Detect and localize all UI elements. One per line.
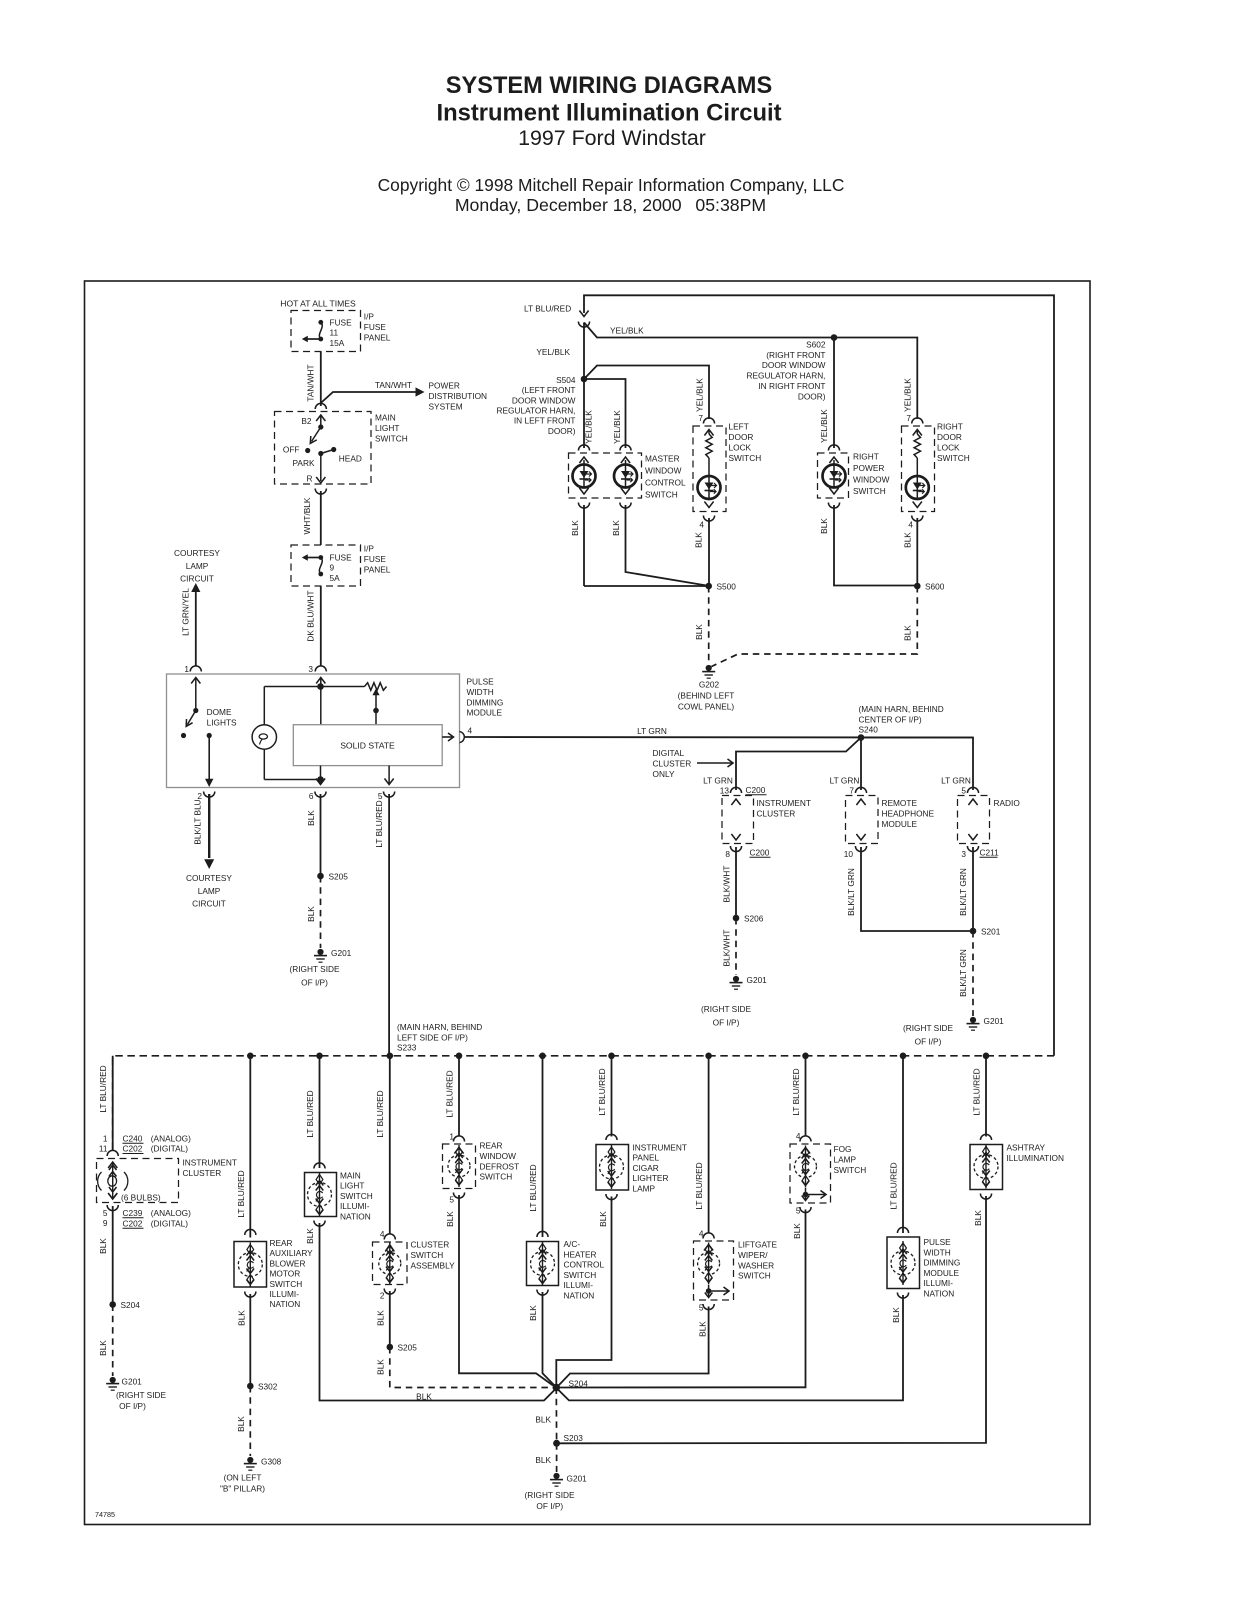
svg-text:DOME: DOME bbox=[207, 707, 232, 717]
svg-text:BLK: BLK bbox=[891, 1307, 901, 1323]
svg-text:5A: 5A bbox=[330, 573, 341, 583]
svg-text:S205: S205 bbox=[329, 872, 349, 882]
svg-text:INSTRUMENT: INSTRUMENT bbox=[757, 798, 811, 808]
svg-text:BLK: BLK bbox=[792, 1223, 802, 1239]
svg-text:MODULE: MODULE bbox=[467, 708, 503, 718]
svg-text:LT BLU/RED: LT BLU/RED bbox=[305, 1090, 315, 1137]
svg-text:BLK: BLK bbox=[416, 1392, 432, 1402]
svg-text:LAMP: LAMP bbox=[633, 1183, 656, 1193]
svg-text:LT GRN: LT GRN bbox=[637, 726, 667, 736]
svg-text:BLK: BLK bbox=[98, 1340, 108, 1356]
svg-text:SWITCH: SWITCH bbox=[645, 490, 678, 500]
svg-text:ASHTRAY: ASHTRAY bbox=[1007, 1143, 1046, 1153]
svg-text:WINDOW: WINDOW bbox=[853, 475, 890, 485]
svg-text:S204: S204 bbox=[569, 1379, 589, 1389]
svg-text:(DIGITAL): (DIGITAL) bbox=[151, 1218, 188, 1228]
svg-text:(RIGHT FRONT: (RIGHT FRONT bbox=[766, 350, 825, 360]
svg-text:DOOR: DOOR bbox=[937, 432, 962, 442]
svg-text:HEAD: HEAD bbox=[339, 454, 362, 464]
svg-text:G201: G201 bbox=[567, 1474, 588, 1484]
svg-text:BLK: BLK bbox=[375, 1310, 385, 1326]
svg-text:LAMP: LAMP bbox=[198, 886, 221, 896]
svg-text:RIGHT: RIGHT bbox=[937, 422, 963, 432]
svg-text:PULSE: PULSE bbox=[467, 677, 495, 687]
svg-text:ILLUMINATION: ILLUMINATION bbox=[1007, 1153, 1064, 1163]
svg-text:6: 6 bbox=[309, 791, 314, 801]
svg-text:CIRCUIT: CIRCUIT bbox=[180, 574, 214, 584]
svg-text:IN RIGHT FRONT: IN RIGHT FRONT bbox=[758, 381, 825, 391]
svg-text:LEFT SIDE OF I/P): LEFT SIDE OF I/P) bbox=[397, 1032, 468, 1042]
svg-text:PANEL: PANEL bbox=[364, 332, 391, 342]
svg-text:PANEL: PANEL bbox=[364, 564, 391, 574]
svg-text:Instrument Illumination Circui: Instrument Illumination Circuit bbox=[436, 100, 781, 127]
svg-text:C211: C211 bbox=[980, 848, 1000, 858]
svg-text:CIRCUIT: CIRCUIT bbox=[192, 899, 226, 909]
svg-text:SWITCH: SWITCH bbox=[853, 486, 886, 496]
svg-text:FUSE: FUSE bbox=[364, 554, 387, 564]
svg-text:WIDTH: WIDTH bbox=[467, 687, 494, 697]
svg-text:HEADPHONE: HEADPHONE bbox=[882, 809, 935, 819]
svg-text:CONTROL: CONTROL bbox=[645, 478, 686, 488]
svg-text:ONLY: ONLY bbox=[653, 769, 675, 779]
svg-text:COURTESY: COURTESY bbox=[174, 548, 220, 558]
svg-text:TAN/WHT: TAN/WHT bbox=[306, 364, 316, 401]
svg-text:(ANALOG): (ANALOG) bbox=[151, 1134, 191, 1144]
svg-text:(RIGHT SIDE: (RIGHT SIDE bbox=[116, 1390, 167, 1400]
svg-text:SWITCH: SWITCH bbox=[738, 1271, 771, 1281]
svg-text:BLK: BLK bbox=[598, 1211, 608, 1227]
svg-text:BLK: BLK bbox=[305, 1228, 315, 1244]
svg-text:MASTER: MASTER bbox=[645, 454, 680, 464]
svg-text:COURTESY: COURTESY bbox=[186, 873, 232, 883]
svg-text:DOOR WINDOW: DOOR WINDOW bbox=[762, 360, 826, 370]
svg-text:S204: S204 bbox=[121, 1300, 141, 1310]
svg-text:LOCK: LOCK bbox=[729, 443, 752, 453]
svg-text:NATION: NATION bbox=[564, 1291, 595, 1301]
svg-text:1997 Ford Windstar: 1997 Ford Windstar bbox=[518, 126, 706, 150]
svg-text:I/P: I/P bbox=[364, 544, 375, 554]
svg-text:OF I/P): OF I/P) bbox=[915, 1037, 942, 1047]
svg-text:CLUSTER: CLUSTER bbox=[183, 1168, 222, 1178]
svg-text:11: 11 bbox=[330, 328, 339, 338]
svg-text:OFF: OFF bbox=[283, 445, 300, 455]
svg-text:LIGHTS: LIGHTS bbox=[207, 717, 237, 727]
svg-text:CLUSTER: CLUSTER bbox=[411, 1240, 450, 1250]
svg-text:(ON LEFT: (ON LEFT bbox=[224, 1473, 262, 1483]
svg-text:YEL/BLK: YEL/BLK bbox=[819, 409, 829, 443]
svg-text:"B" PILLAR): "B" PILLAR) bbox=[220, 1484, 265, 1494]
svg-text:REMOTE: REMOTE bbox=[882, 798, 918, 808]
svg-text:LT BLU/RED: LT BLU/RED bbox=[524, 304, 571, 314]
svg-text:REGULATOR HARN,: REGULATOR HARN, bbox=[747, 371, 826, 381]
svg-text:MODULE: MODULE bbox=[924, 1268, 960, 1278]
svg-text:4: 4 bbox=[908, 520, 913, 530]
svg-text:5: 5 bbox=[378, 791, 383, 801]
svg-text:FUSE: FUSE bbox=[330, 318, 353, 328]
svg-text:BLK: BLK bbox=[535, 1455, 551, 1465]
svg-text:S201: S201 bbox=[981, 927, 1001, 937]
svg-text:BLK/WHT: BLK/WHT bbox=[722, 866, 732, 903]
svg-text:DOOR): DOOR) bbox=[798, 391, 826, 401]
svg-text:FUSE: FUSE bbox=[364, 322, 387, 332]
svg-text:S203: S203 bbox=[564, 1433, 584, 1443]
svg-text:DIMMING: DIMMING bbox=[467, 697, 504, 707]
svg-text:AUXILIARY: AUXILIARY bbox=[270, 1248, 314, 1258]
svg-text:CENTER OF I/P): CENTER OF I/P) bbox=[859, 714, 922, 724]
svg-text:(ANALOG): (ANALOG) bbox=[151, 1208, 191, 1218]
svg-text:OF I/P): OF I/P) bbox=[536, 1501, 563, 1511]
svg-text:BLK/LT GRN: BLK/LT GRN bbox=[846, 868, 856, 916]
svg-text:BLK: BLK bbox=[445, 1211, 455, 1227]
svg-text:INSTRUMENT: INSTRUMENT bbox=[633, 1143, 687, 1153]
svg-text:LIGHT: LIGHT bbox=[375, 423, 399, 433]
svg-text:G202: G202 bbox=[699, 680, 720, 690]
svg-text:CONTROL: CONTROL bbox=[564, 1260, 605, 1270]
svg-text:BLK: BLK bbox=[819, 518, 829, 534]
svg-text:BLK: BLK bbox=[306, 906, 316, 922]
svg-text:2: 2 bbox=[380, 1291, 385, 1301]
svg-text:LT BLU/RED: LT BLU/RED bbox=[791, 1068, 801, 1115]
svg-text:SWITCH: SWITCH bbox=[340, 1191, 373, 1201]
svg-text:WHT/BLK: WHT/BLK bbox=[302, 497, 312, 534]
svg-text:7: 7 bbox=[698, 413, 703, 423]
svg-text:S233: S233 bbox=[397, 1043, 417, 1053]
svg-text:SYSTEM: SYSTEM bbox=[429, 401, 463, 411]
svg-text:(LEFT FRONT: (LEFT FRONT bbox=[522, 385, 576, 395]
svg-text:NATION: NATION bbox=[340, 1211, 371, 1221]
svg-text:YEL/BLK: YEL/BLK bbox=[695, 378, 705, 412]
svg-text:YEL/BLK: YEL/BLK bbox=[903, 378, 913, 412]
svg-text:15A: 15A bbox=[330, 338, 345, 348]
svg-text:BLK: BLK bbox=[375, 1359, 385, 1375]
svg-text:(RIGHT SIDE: (RIGHT SIDE bbox=[903, 1023, 954, 1033]
svg-text:ASSEMBLY: ASSEMBLY bbox=[411, 1260, 456, 1270]
svg-text:LT BLU/RED: LT BLU/RED bbox=[972, 1068, 982, 1115]
svg-text:OF I/P): OF I/P) bbox=[713, 1018, 740, 1028]
svg-text:YEL/BLK: YEL/BLK bbox=[536, 347, 570, 357]
svg-text:S205: S205 bbox=[398, 1343, 418, 1353]
svg-text:B2: B2 bbox=[301, 416, 312, 426]
svg-text:LIGHT: LIGHT bbox=[340, 1181, 364, 1191]
svg-text:WINDOW: WINDOW bbox=[645, 466, 682, 476]
svg-text:(RIGHT SIDE: (RIGHT SIDE bbox=[701, 1004, 752, 1014]
svg-text:IN LEFT FRONT: IN LEFT FRONT bbox=[514, 416, 576, 426]
svg-text:C200: C200 bbox=[750, 848, 770, 858]
svg-text:LT BLU/RED: LT BLU/RED bbox=[888, 1162, 898, 1209]
svg-text:CLUSTER: CLUSTER bbox=[757, 809, 796, 819]
svg-text:7: 7 bbox=[849, 786, 854, 796]
svg-text:PARK: PARK bbox=[293, 458, 315, 468]
svg-text:LT BLU/RED: LT BLU/RED bbox=[375, 1090, 385, 1137]
svg-text:LEFT: LEFT bbox=[729, 422, 749, 432]
svg-text:MOTOR: MOTOR bbox=[270, 1269, 301, 1279]
svg-text:SWITCH: SWITCH bbox=[375, 434, 408, 444]
svg-text:S500: S500 bbox=[717, 582, 737, 592]
svg-text:REGULATOR HARN,: REGULATOR HARN, bbox=[497, 405, 576, 415]
svg-text:S600: S600 bbox=[925, 582, 945, 592]
svg-text:DISTRIBUTION: DISTRIBUTION bbox=[429, 391, 488, 401]
svg-text:LT GRN/YEL: LT GRN/YEL bbox=[181, 588, 191, 636]
svg-text:1: 1 bbox=[184, 664, 189, 674]
svg-text:LAMP: LAMP bbox=[834, 1154, 857, 1164]
svg-text:LT BLU/RED: LT BLU/RED bbox=[445, 1070, 455, 1117]
svg-text:9: 9 bbox=[330, 563, 335, 573]
svg-text:ILLUMI-: ILLUMI- bbox=[340, 1201, 370, 1211]
svg-text:POWER: POWER bbox=[429, 381, 460, 391]
svg-text:CLUSTER: CLUSTER bbox=[653, 758, 692, 768]
svg-text:BLK: BLK bbox=[611, 520, 621, 536]
svg-text:BLK: BLK bbox=[903, 625, 913, 641]
svg-text:YEL/BLK: YEL/BLK bbox=[610, 326, 644, 336]
svg-text:G201: G201 bbox=[984, 1016, 1005, 1026]
svg-text:1: 1 bbox=[103, 1134, 108, 1144]
svg-text:WINDOW: WINDOW bbox=[480, 1151, 517, 1161]
svg-text:INSTRUMENT: INSTRUMENT bbox=[183, 1158, 237, 1168]
svg-text:LT GRN: LT GRN bbox=[703, 776, 733, 786]
svg-text:MODULE: MODULE bbox=[882, 819, 918, 829]
svg-text:YEL/BLK: YEL/BLK bbox=[612, 410, 622, 444]
svg-text:3: 3 bbox=[308, 664, 313, 674]
svg-text:C202: C202 bbox=[123, 1218, 143, 1228]
svg-text:A/C-: A/C- bbox=[564, 1239, 581, 1249]
svg-text:5: 5 bbox=[961, 786, 966, 796]
svg-text:NATION: NATION bbox=[924, 1289, 955, 1299]
svg-text:TAN/WHT: TAN/WHT bbox=[375, 380, 412, 390]
svg-text:Copyright © 1998 Mitchell Repa: Copyright © 1998 Mitchell Repair Informa… bbox=[378, 175, 845, 195]
svg-text:POWER: POWER bbox=[853, 463, 884, 473]
svg-text:RADIO: RADIO bbox=[994, 798, 1021, 808]
svg-text:G308: G308 bbox=[261, 1457, 282, 1467]
svg-text:ILLUMI-: ILLUMI- bbox=[270, 1289, 300, 1299]
svg-text:SWITCH: SWITCH bbox=[411, 1250, 444, 1260]
svg-text:DOOR): DOOR) bbox=[548, 426, 576, 436]
svg-text:(MAIN HARN, BEHIND: (MAIN HARN, BEHIND bbox=[397, 1022, 482, 1032]
svg-text:DK BLU/WHT: DK BLU/WHT bbox=[305, 590, 315, 641]
svg-text:COWL PANEL): COWL PANEL) bbox=[678, 702, 734, 712]
svg-text:RIGHT: RIGHT bbox=[853, 452, 879, 462]
svg-text:C239: C239 bbox=[123, 1208, 143, 1218]
svg-text:BLK: BLK bbox=[306, 810, 316, 826]
svg-text:(MAIN HARN, BEHIND: (MAIN HARN, BEHIND bbox=[859, 704, 944, 714]
svg-text:FUSE: FUSE bbox=[330, 553, 353, 563]
svg-text:G201: G201 bbox=[331, 948, 352, 958]
svg-text:BLK/LT BLU: BLK/LT BLU bbox=[193, 799, 203, 844]
svg-text:SWITCH: SWITCH bbox=[564, 1270, 597, 1280]
svg-text:REAR: REAR bbox=[270, 1238, 293, 1248]
svg-text:11: 11 bbox=[99, 1144, 108, 1154]
svg-text:(DIGITAL): (DIGITAL) bbox=[151, 1144, 188, 1154]
svg-text:LIFTGATE: LIFTGATE bbox=[738, 1240, 777, 1250]
svg-text:SOLID STATE: SOLID STATE bbox=[340, 741, 395, 751]
svg-text:G201: G201 bbox=[747, 975, 768, 985]
svg-text:5: 5 bbox=[796, 1206, 801, 1216]
svg-text:WASHER: WASHER bbox=[738, 1260, 774, 1270]
svg-text:LT BLU/RED: LT BLU/RED bbox=[374, 800, 384, 847]
svg-text:SWITCH: SWITCH bbox=[937, 453, 970, 463]
svg-text:13: 13 bbox=[720, 786, 730, 796]
svg-text:SWITCH: SWITCH bbox=[480, 1172, 513, 1182]
svg-text:C200: C200 bbox=[746, 785, 766, 795]
svg-text:9: 9 bbox=[103, 1218, 108, 1228]
svg-text:G201: G201 bbox=[122, 1377, 143, 1387]
svg-text:BLK: BLK bbox=[973, 1210, 983, 1226]
svg-text:C202: C202 bbox=[123, 1144, 143, 1154]
svg-text:BLK: BLK bbox=[694, 624, 704, 640]
svg-text:(RIGHT SIDE: (RIGHT SIDE bbox=[524, 1490, 575, 1500]
svg-text:BLK/WHT: BLK/WHT bbox=[722, 930, 732, 967]
svg-text:DIMMING: DIMMING bbox=[924, 1258, 961, 1268]
svg-text:7: 7 bbox=[906, 413, 911, 423]
svg-text:3: 3 bbox=[961, 849, 966, 859]
svg-text:4: 4 bbox=[699, 520, 704, 530]
svg-text:SYSTEM WIRING DIAGRAMS: SYSTEM WIRING DIAGRAMS bbox=[446, 73, 772, 99]
svg-text:REAR: REAR bbox=[480, 1141, 503, 1151]
svg-text:(6 BULBS): (6 BULBS) bbox=[121, 1193, 161, 1203]
svg-text:S602: S602 bbox=[806, 340, 826, 350]
svg-text:LT GRN: LT GRN bbox=[941, 776, 971, 786]
svg-text:(RIGHT SIDE: (RIGHT SIDE bbox=[289, 964, 340, 974]
svg-text:SWITCH: SWITCH bbox=[834, 1165, 867, 1175]
svg-text:WIPER/: WIPER/ bbox=[738, 1250, 768, 1260]
svg-text:S240: S240 bbox=[859, 725, 879, 735]
svg-text:LOCK: LOCK bbox=[937, 443, 960, 453]
svg-text:BLK: BLK bbox=[528, 1305, 538, 1321]
svg-text:(BEHIND LEFT: (BEHIND LEFT bbox=[678, 691, 735, 701]
svg-text:PANEL: PANEL bbox=[633, 1153, 660, 1163]
svg-text:S504: S504 bbox=[556, 375, 576, 385]
svg-text:HEATER: HEATER bbox=[564, 1249, 597, 1259]
svg-text:SWITCH: SWITCH bbox=[729, 453, 762, 463]
svg-text:DOOR: DOOR bbox=[729, 432, 754, 442]
svg-text:WIDTH: WIDTH bbox=[924, 1247, 951, 1257]
svg-text:LT GRN: LT GRN bbox=[830, 776, 860, 786]
svg-text:LT BLU/RED: LT BLU/RED bbox=[597, 1068, 607, 1115]
svg-text:BLK: BLK bbox=[535, 1415, 551, 1425]
svg-text:OF I/P): OF I/P) bbox=[301, 978, 328, 988]
svg-text:CIGAR: CIGAR bbox=[633, 1163, 659, 1173]
svg-text:BLOWER: BLOWER bbox=[270, 1258, 306, 1268]
svg-text:BLK: BLK bbox=[694, 532, 704, 548]
svg-text:Monday, December 18, 2000 05:: Monday, December 18, 2000 05:38PM bbox=[455, 195, 766, 215]
svg-text:5: 5 bbox=[449, 1195, 454, 1205]
svg-text:5: 5 bbox=[699, 1303, 704, 1313]
svg-text:HOT AT ALL TIMES: HOT AT ALL TIMES bbox=[280, 299, 356, 309]
svg-text:10: 10 bbox=[844, 849, 854, 859]
svg-text:SWITCH: SWITCH bbox=[270, 1279, 303, 1289]
svg-text:R: R bbox=[307, 474, 313, 484]
svg-text:BLK: BLK bbox=[236, 1310, 246, 1326]
svg-text:PULSE: PULSE bbox=[924, 1237, 952, 1247]
svg-text:ILLUMI-: ILLUMI- bbox=[564, 1280, 594, 1290]
svg-text:LT BLU/RED: LT BLU/RED bbox=[694, 1162, 704, 1209]
svg-text:8: 8 bbox=[725, 849, 730, 859]
svg-text:MAIN: MAIN bbox=[340, 1171, 361, 1181]
svg-text:LT BLU/RED: LT BLU/RED bbox=[98, 1065, 108, 1112]
svg-text:BLK: BLK bbox=[697, 1321, 707, 1337]
svg-text:C240: C240 bbox=[123, 1134, 143, 1144]
svg-text:LIGHTER: LIGHTER bbox=[633, 1173, 669, 1183]
svg-text:BLK/LT GRN: BLK/LT GRN bbox=[958, 868, 968, 916]
svg-text:BLK: BLK bbox=[903, 532, 913, 548]
svg-text:4: 4 bbox=[468, 726, 473, 736]
svg-text:MAIN: MAIN bbox=[375, 413, 396, 423]
svg-text:5: 5 bbox=[103, 1208, 108, 1218]
svg-text:NATION: NATION bbox=[270, 1299, 301, 1309]
svg-text:BLK: BLK bbox=[98, 1238, 108, 1254]
svg-text:I/P: I/P bbox=[364, 312, 375, 322]
svg-text:BLK: BLK bbox=[236, 1416, 246, 1432]
svg-text:ILLUMI-: ILLUMI- bbox=[924, 1278, 954, 1288]
svg-text:BLK: BLK bbox=[570, 520, 580, 536]
svg-text:FOG: FOG bbox=[834, 1144, 852, 1154]
svg-text:74785: 74785 bbox=[95, 1510, 115, 1519]
svg-text:LT BLU/RED: LT BLU/RED bbox=[236, 1170, 246, 1217]
svg-text:LAMP: LAMP bbox=[186, 561, 209, 571]
svg-text:DIGITAL: DIGITAL bbox=[653, 748, 685, 758]
svg-text:S302: S302 bbox=[258, 1382, 278, 1392]
svg-text:S206: S206 bbox=[744, 914, 764, 924]
svg-text:OF I/P): OF I/P) bbox=[119, 1401, 146, 1411]
svg-text:LT BLU/RED: LT BLU/RED bbox=[528, 1164, 538, 1211]
svg-text:DOOR WINDOW: DOOR WINDOW bbox=[512, 395, 576, 405]
svg-text:YEL/BLK: YEL/BLK bbox=[584, 410, 594, 444]
svg-text:DEFROST: DEFROST bbox=[480, 1161, 520, 1171]
svg-text:BLK/LT GRN: BLK/LT GRN bbox=[958, 949, 968, 997]
